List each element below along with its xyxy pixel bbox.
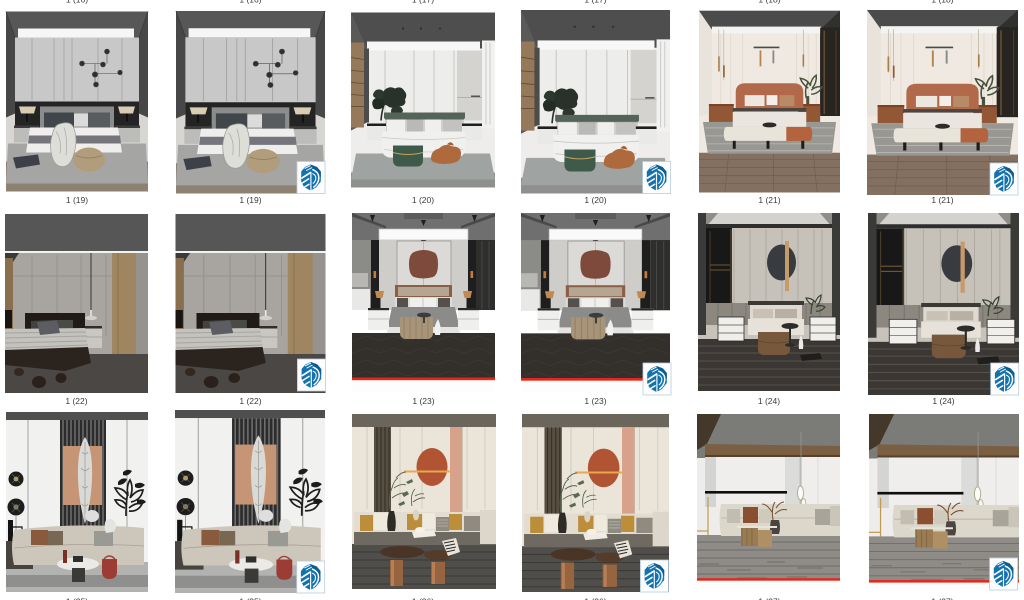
svg-text:1 (22): 1 (22)	[239, 396, 261, 406]
svg-text:1 (16): 1 (16)	[239, 0, 261, 5]
svg-text:1 (23): 1 (23)	[584, 396, 606, 406]
svg-text:1 (25): 1 (25)	[239, 597, 261, 600]
svg-text:1 (17): 1 (17)	[584, 0, 606, 5]
svg-text:1 (16): 1 (16)	[66, 0, 88, 5]
svg-text:1 (19): 1 (19)	[239, 195, 261, 205]
svg-text:1 (18): 1 (18)	[758, 0, 780, 5]
svg-text:1 (27): 1 (27)	[931, 597, 953, 600]
svg-text:1 (21): 1 (21)	[931, 195, 953, 205]
svg-text:1 (24): 1 (24)	[932, 396, 954, 406]
svg-text:1 (20): 1 (20)	[412, 195, 434, 205]
svg-text:1 (26): 1 (26)	[412, 597, 434, 600]
svg-text:1 (23): 1 (23)	[412, 396, 434, 406]
svg-text:1 (17): 1 (17)	[412, 0, 434, 5]
svg-text:1 (26): 1 (26)	[584, 597, 606, 600]
svg-text:1 (24): 1 (24)	[758, 396, 780, 406]
svg-text:1 (25): 1 (25)	[66, 597, 88, 600]
svg-text:1 (19): 1 (19)	[66, 195, 88, 205]
svg-text:1 (18): 1 (18)	[931, 0, 953, 5]
svg-text:1 (20): 1 (20)	[584, 195, 606, 205]
svg-text:1 (22): 1 (22)	[65, 396, 87, 406]
svg-text:1 (27): 1 (27)	[758, 597, 780, 600]
svg-text:1 (21): 1 (21)	[758, 195, 780, 205]
